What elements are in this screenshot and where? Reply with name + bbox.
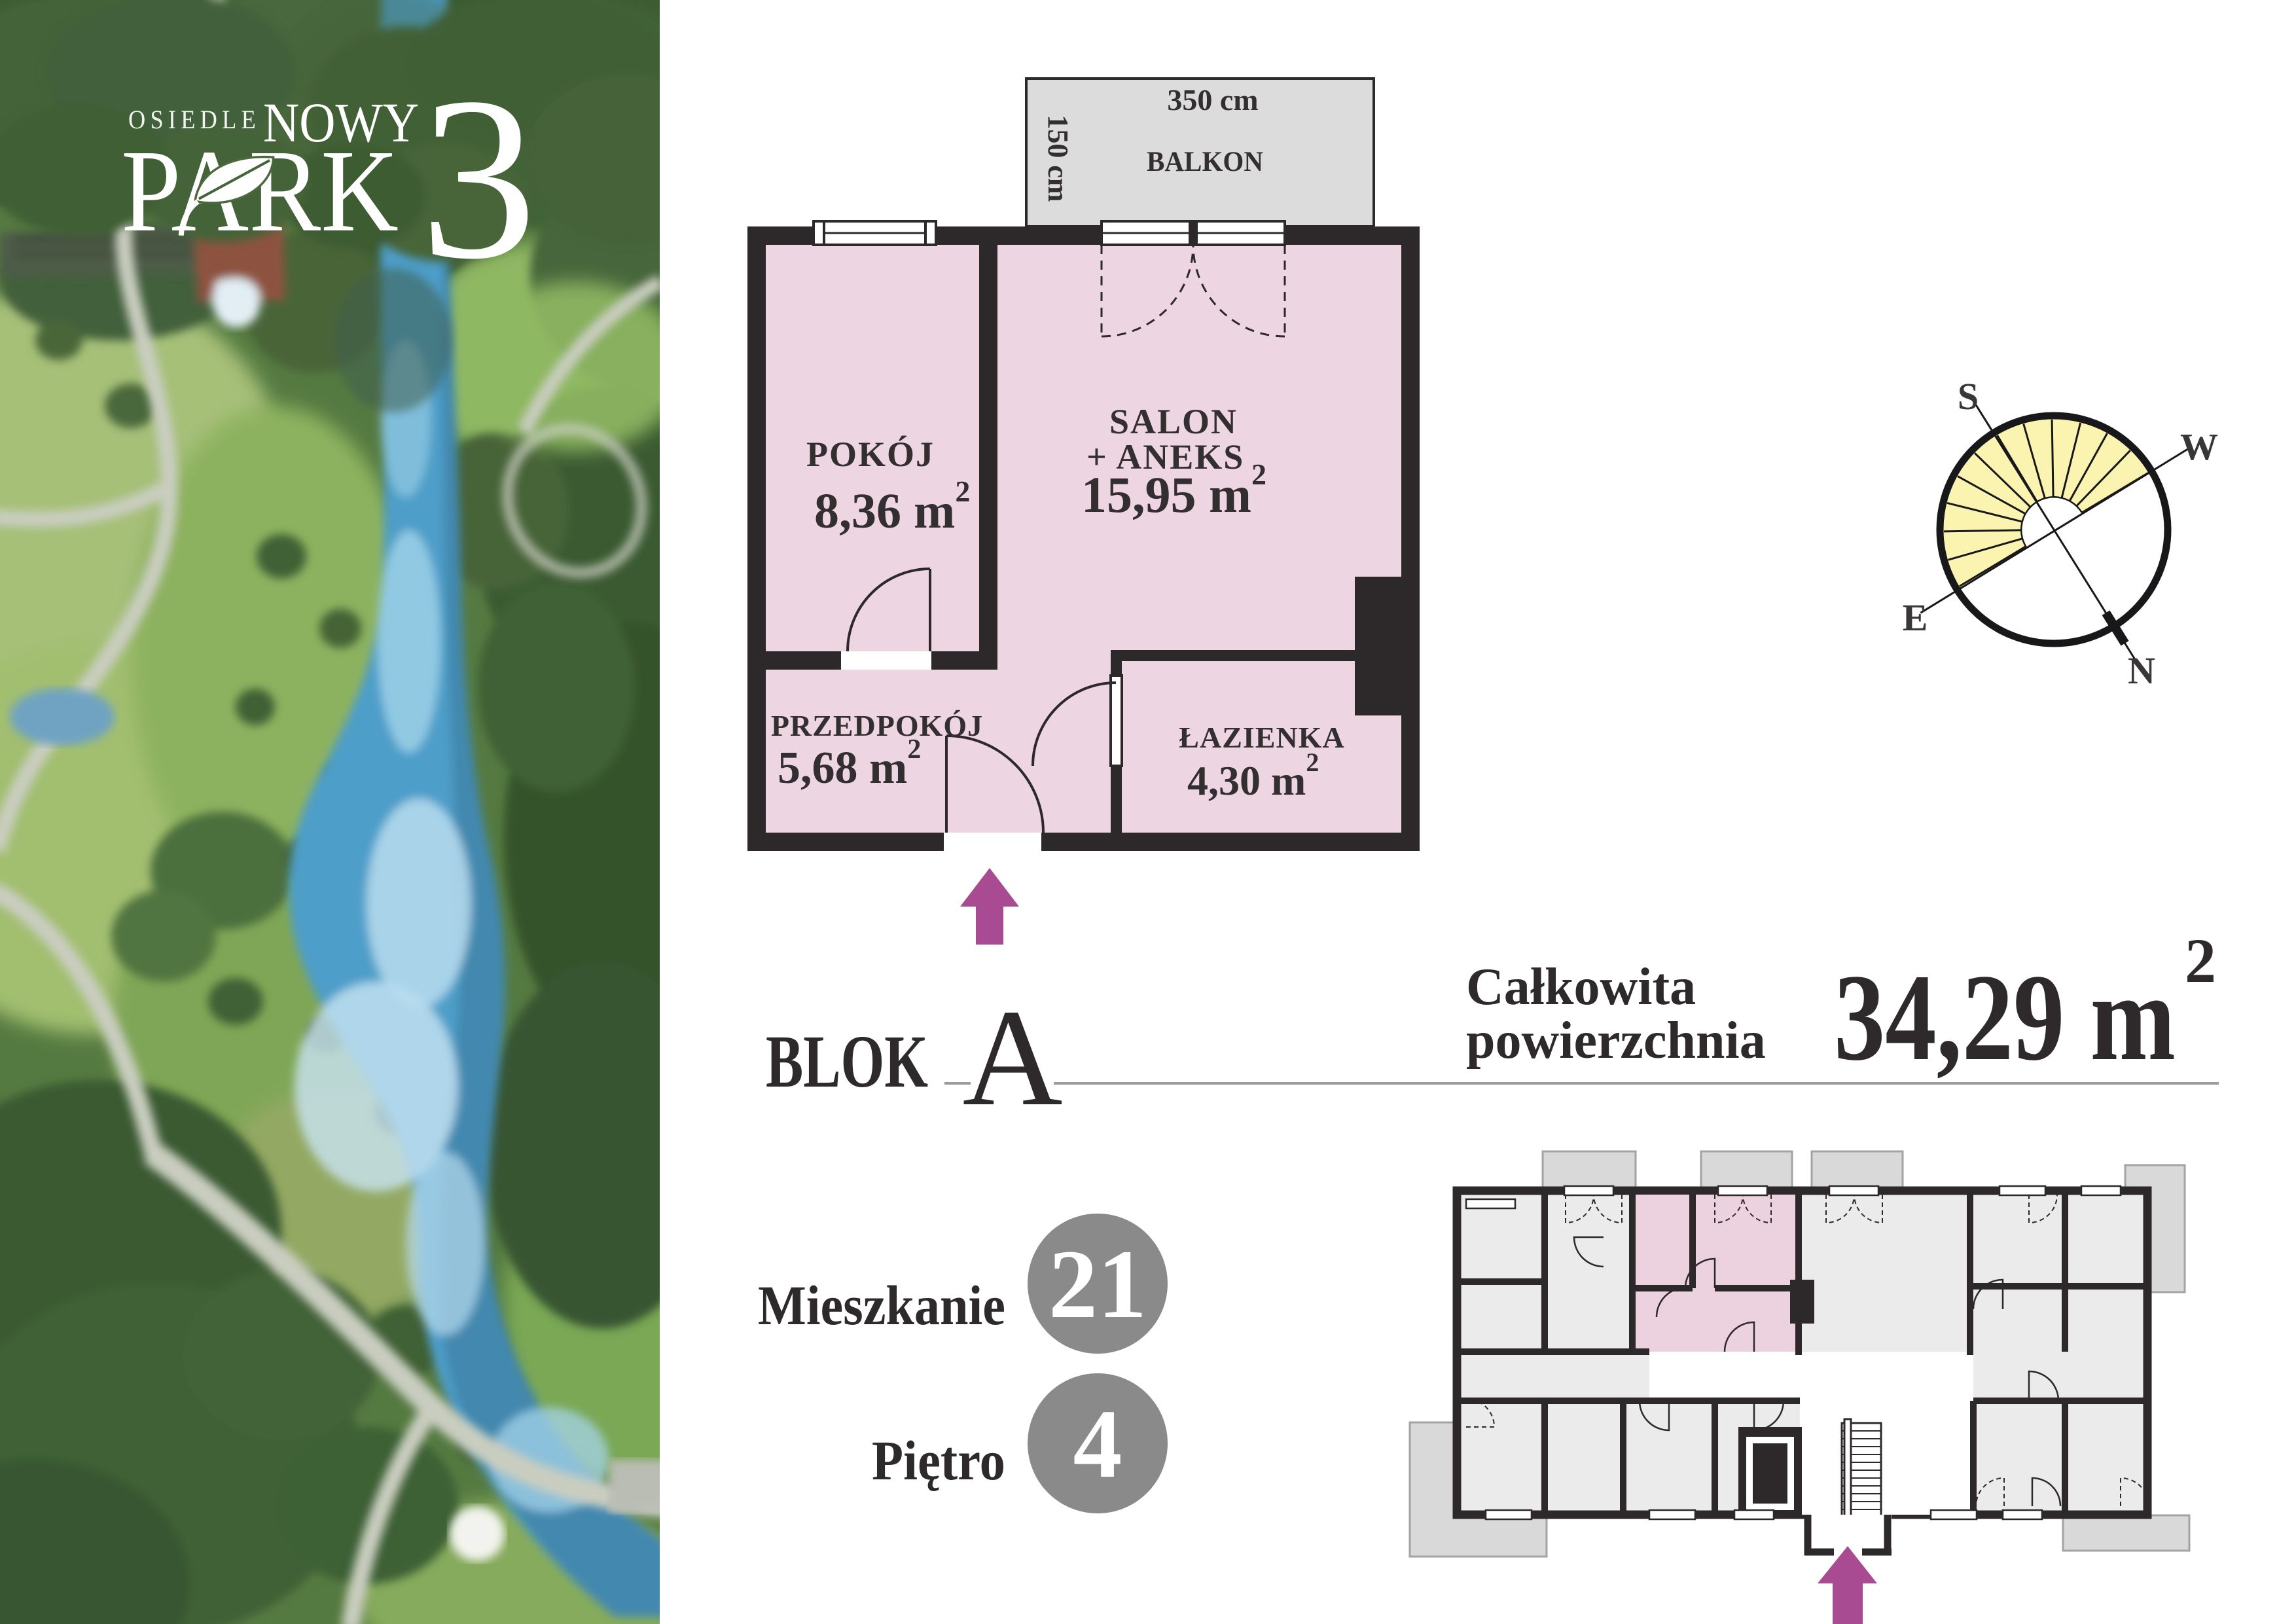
svg-text:S: S: [1958, 375, 1979, 418]
svg-text:5,68 m2: 5,68 m2: [778, 734, 921, 793]
svg-text:3: 3: [420, 50, 537, 308]
svg-text:Całkowita: Całkowita: [1466, 958, 1696, 1016]
svg-text:SALON: SALON: [1109, 402, 1238, 441]
svg-text:21: 21: [1049, 1230, 1147, 1339]
svg-text:A: A: [962, 981, 1062, 1134]
svg-text:powierzchnia: powierzchnia: [1466, 1012, 1766, 1070]
svg-text:2: 2: [2185, 926, 2216, 996]
svg-text:8,36 m2: 8,36 m2: [814, 475, 970, 539]
svg-text:ŁAZIENKA: ŁAZIENKA: [1179, 721, 1344, 754]
svg-text:E: E: [1903, 596, 1928, 639]
svg-text:PRZEDPOKÓJ: PRZEDPOKÓJ: [771, 709, 983, 742]
svg-text:BALKON: BALKON: [1147, 147, 1263, 177]
svg-text:15,95 m2: 15,95 m2: [1081, 458, 1266, 523]
svg-text:4: 4: [1073, 1390, 1122, 1498]
svg-text:350 cm: 350 cm: [1167, 83, 1258, 117]
svg-text:PARK: PARK: [121, 126, 399, 256]
svg-text:150 cm: 150 cm: [1042, 115, 1074, 202]
svg-text:BLOK: BLOK: [766, 1020, 928, 1103]
svg-text:POKÓJ: POKÓJ: [806, 435, 935, 474]
svg-text:34,29 m: 34,29 m: [1834, 949, 2176, 1087]
svg-text:N: N: [2128, 649, 2155, 692]
svg-text:Mieszkanie: Mieszkanie: [758, 1274, 1005, 1337]
svg-text:W: W: [2180, 425, 2218, 468]
svg-text:Piętro: Piętro: [872, 1429, 1005, 1492]
